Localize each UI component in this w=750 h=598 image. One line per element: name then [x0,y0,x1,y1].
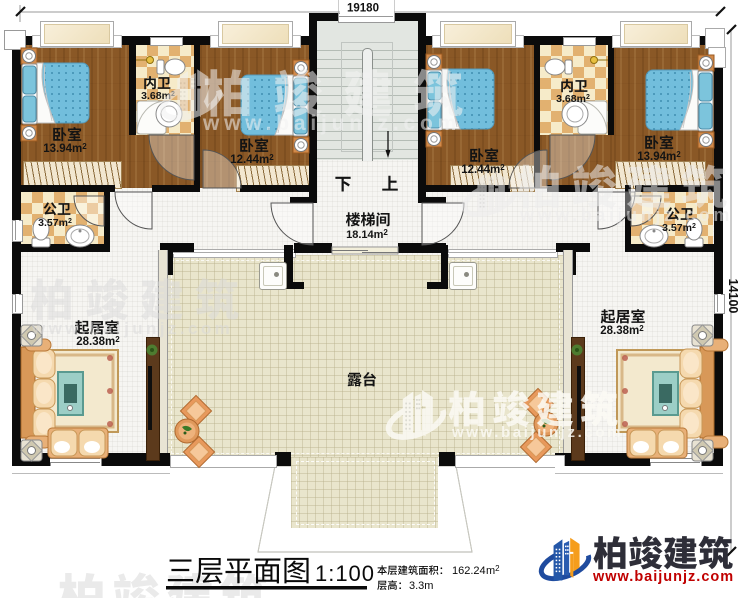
svg-text:14100: 14100 [726,279,740,314]
svg-text:m2: m2 [486,564,500,577]
svg-text:3.68m2: 3.68m2 [556,93,590,105]
svg-text:www.baijunjz.com: www.baijunjz.com [31,319,233,338]
svg-text:3.3m: 3.3m [409,580,433,592]
svg-text:www.baijunjz.com: www.baijunjz.com [451,424,623,441]
svg-text:13.94m2: 13.94m2 [43,142,87,155]
svg-text:28.38m2: 28.38m2 [600,324,644,337]
svg-text:3.57m2: 3.57m2 [38,217,72,229]
svg-text:www.baijunjz.com: www.baijunjz.com [592,569,734,585]
svg-text:13.94m2: 13.94m2 [637,150,681,163]
svg-text:1:100: 1:100 [315,561,375,586]
svg-text:18.14m2: 18.14m2 [346,228,388,241]
svg-text:www.baijunjz.com: www.baijunjz.com [519,205,733,225]
svg-text:19180: 19180 [347,3,379,15]
svg-text:12.44m2: 12.44m2 [230,153,274,166]
svg-text:162.24: 162.24 [452,565,486,577]
svg-text:www.baijunjz.com: www.baijunjz.com [202,112,461,135]
